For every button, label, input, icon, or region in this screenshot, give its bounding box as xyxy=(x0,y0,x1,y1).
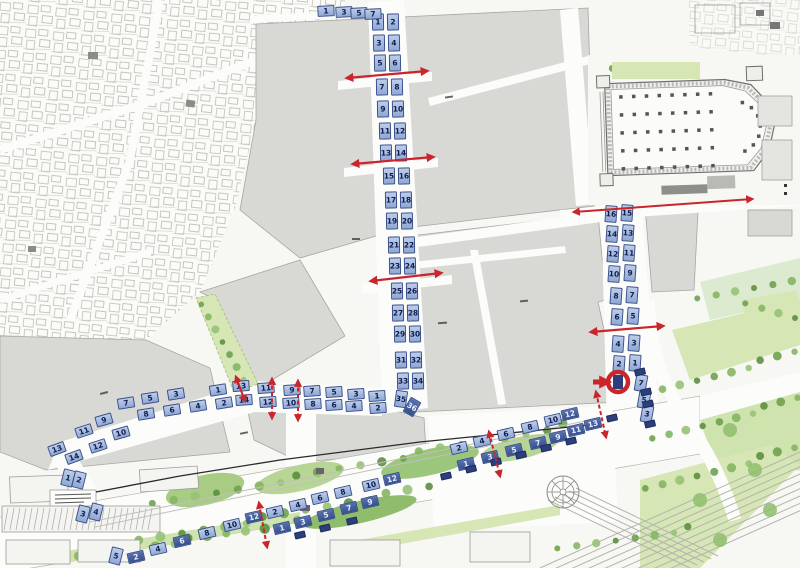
survey-annotations-layer xyxy=(0,0,800,568)
survey-map: 1234567891011121314151617181920212223242… xyxy=(0,0,800,568)
survey-extent-arrow xyxy=(371,273,441,281)
survey-extent-arrow xyxy=(236,377,245,401)
survey-extent-arrows xyxy=(236,71,752,547)
survey-extent-arrow xyxy=(489,432,500,476)
survey-extent-arrow xyxy=(347,71,427,78)
survey-extent-arrow xyxy=(596,392,606,437)
highlighted-segment xyxy=(613,375,623,389)
survey-extent-arrow xyxy=(259,503,267,547)
highlight-marker xyxy=(593,372,628,392)
survey-extent-arrow xyxy=(353,157,433,164)
survey-extent-arrow xyxy=(591,326,663,332)
survey-extent-arrow xyxy=(574,199,752,212)
